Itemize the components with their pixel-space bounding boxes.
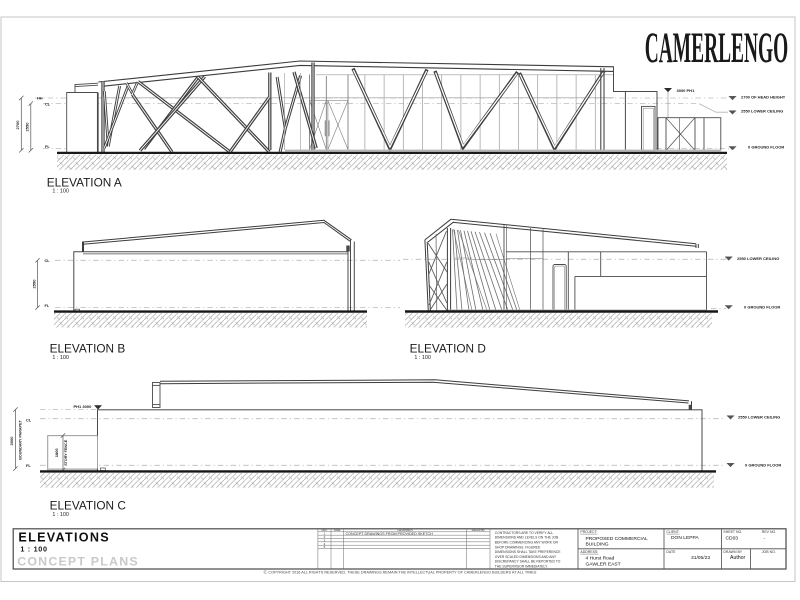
svg-text:0 GROUND FLOOR: 0 GROUND FLOOR	[744, 304, 780, 309]
svg-text:CAMERLENGO: CAMERLENGO	[645, 24, 789, 72]
svg-text:1 : 100: 1 : 100	[52, 189, 69, 195]
svg-text:1 : 100: 1 : 100	[52, 355, 69, 361]
svg-text:CONCEPT DRAWINGS FROM PROVIDED: CONCEPT DRAWINGS FROM PROVIDED SKETCH	[346, 532, 434, 536]
svg-text:31/05/23: 31/05/23	[691, 555, 710, 561]
svg-text:FL: FL	[26, 463, 31, 468]
svg-text:CD03: CD03	[726, 535, 739, 541]
svg-text:4 Hurst Road: 4 Hurst Road	[586, 555, 615, 561]
svg-text:PH1 3000: PH1 3000	[74, 404, 93, 409]
svg-text:OVER SCALED DIMENSIONS AND ANY: OVER SCALED DIMENSIONS AND ANY	[495, 555, 557, 559]
svg-text:0 GROUND FLOOR: 0 GROUND FLOOR	[748, 145, 784, 150]
svg-text:1 : 100: 1 : 100	[414, 355, 431, 361]
svg-text:0 GROUND FLOOR: 0 GROUND FLOOR	[745, 463, 781, 468]
svg-text:2550 LOWER CEILING: 2550 LOWER CEILING	[737, 256, 779, 261]
svg-text:Date: Date	[334, 528, 341, 532]
svg-text:DRAWN BY: DRAWN BY	[723, 550, 742, 554]
svg-text:ELEVATION B: ELEVATION B	[50, 342, 126, 356]
svg-text:BOUNDARY PARAPET: BOUNDARY PARAPET	[19, 420, 23, 460]
svg-text:REV NO.: REV NO.	[762, 530, 776, 534]
svg-text:2550 LOWER CEILING: 2550 LOWER CEILING	[741, 109, 783, 114]
svg-text:2700: 2700	[15, 120, 20, 130]
svg-text:DATE: DATE	[666, 550, 676, 554]
svg-text:DIMENSIONS AND LEVELS ON THE J: DIMENSIONS AND LEVELS ON THE JOB	[495, 536, 559, 540]
svg-text:THE SUPERVISOR IMMEDIATELY.: THE SUPERVISOR IMMEDIATELY.	[495, 565, 548, 569]
svg-text:FL: FL	[45, 144, 50, 149]
svg-text:2700 OF HEAD HEIGHT: 2700 OF HEAD HEIGHT	[741, 94, 786, 99]
svg-text:ELEVATIONS: ELEVATIONS	[18, 530, 110, 544]
svg-text:CLIENT:: CLIENT:	[666, 530, 679, 534]
svg-text:ELEVATION D: ELEVATION D	[410, 342, 486, 356]
svg-text:HH: HH	[37, 96, 43, 101]
svg-text:Issued By: Issued By	[472, 528, 486, 532]
svg-text:STORY FENCE: STORY FENCE	[64, 439, 68, 465]
svg-text:ELEVATION A: ELEVATION A	[47, 176, 122, 190]
svg-text:ADDRESS:: ADDRESS:	[580, 550, 598, 554]
svg-text:BEFORE COMMENCING ANY WORK OR: BEFORE COMMENCING ANY WORK OR	[495, 541, 559, 545]
svg-text:PROPOSED COMMERCIAL: PROPOSED COMMERCIAL	[586, 536, 649, 542]
svg-text:SHEET NO.: SHEET NO.	[723, 530, 742, 534]
svg-text:CONCEPT PLANS: CONCEPT PLANS	[17, 554, 139, 568]
svg-text:1 : 100: 1 : 100	[20, 545, 47, 554]
svg-text:ELEVATION C: ELEVATION C	[50, 499, 127, 513]
svg-text:Author: Author	[730, 555, 746, 561]
svg-text:1800: 1800	[54, 448, 59, 458]
svg-text:CL: CL	[45, 258, 51, 263]
svg-text:2550: 2550	[25, 122, 30, 132]
svg-text:SHOP DRAWINGS. FIGURED: SHOP DRAWINGS. FIGURED	[495, 545, 541, 549]
svg-text:BUILDING: BUILDING	[586, 542, 609, 548]
svg-text:FL: FL	[45, 303, 50, 308]
svg-text:3000 PH1: 3000 PH1	[677, 88, 696, 93]
svg-text:DON LEPPA: DON LEPPA	[671, 535, 699, 541]
svg-text:1 : 100: 1 : 100	[52, 512, 69, 518]
svg-text:2550: 2550	[32, 279, 37, 289]
svg-text:JOB NO.: JOB NO.	[762, 550, 776, 554]
svg-text:3000: 3000	[9, 436, 14, 446]
svg-text:PROJECT:: PROJECT:	[580, 530, 597, 534]
svg-text:Ⓒ COPYRIGHT 2016 ALL RIGHTS RE: Ⓒ COPYRIGHT 2016 ALL RIGHTS RESERVED, TH…	[264, 569, 537, 574]
svg-text:2550 LOWER CEILING: 2550 LOWER CEILING	[738, 415, 780, 420]
svg-text:GAWLER EAST: GAWLER EAST	[586, 561, 621, 567]
svg-text:CONTRACTORS ARE TO VERIFY ALL: CONTRACTORS ARE TO VERIFY ALL	[495, 531, 554, 535]
svg-text:DISCREPANCY SHALL BE REPORTED: DISCREPANCY SHALL BE REPORTED TO	[495, 560, 561, 564]
svg-text:CL: CL	[45, 102, 51, 107]
svg-text:CL: CL	[26, 417, 32, 422]
svg-text:DIMENSIONS SHALL TAKE PREFEREN: DIMENSIONS SHALL TAKE PREFERENCE	[495, 550, 561, 554]
